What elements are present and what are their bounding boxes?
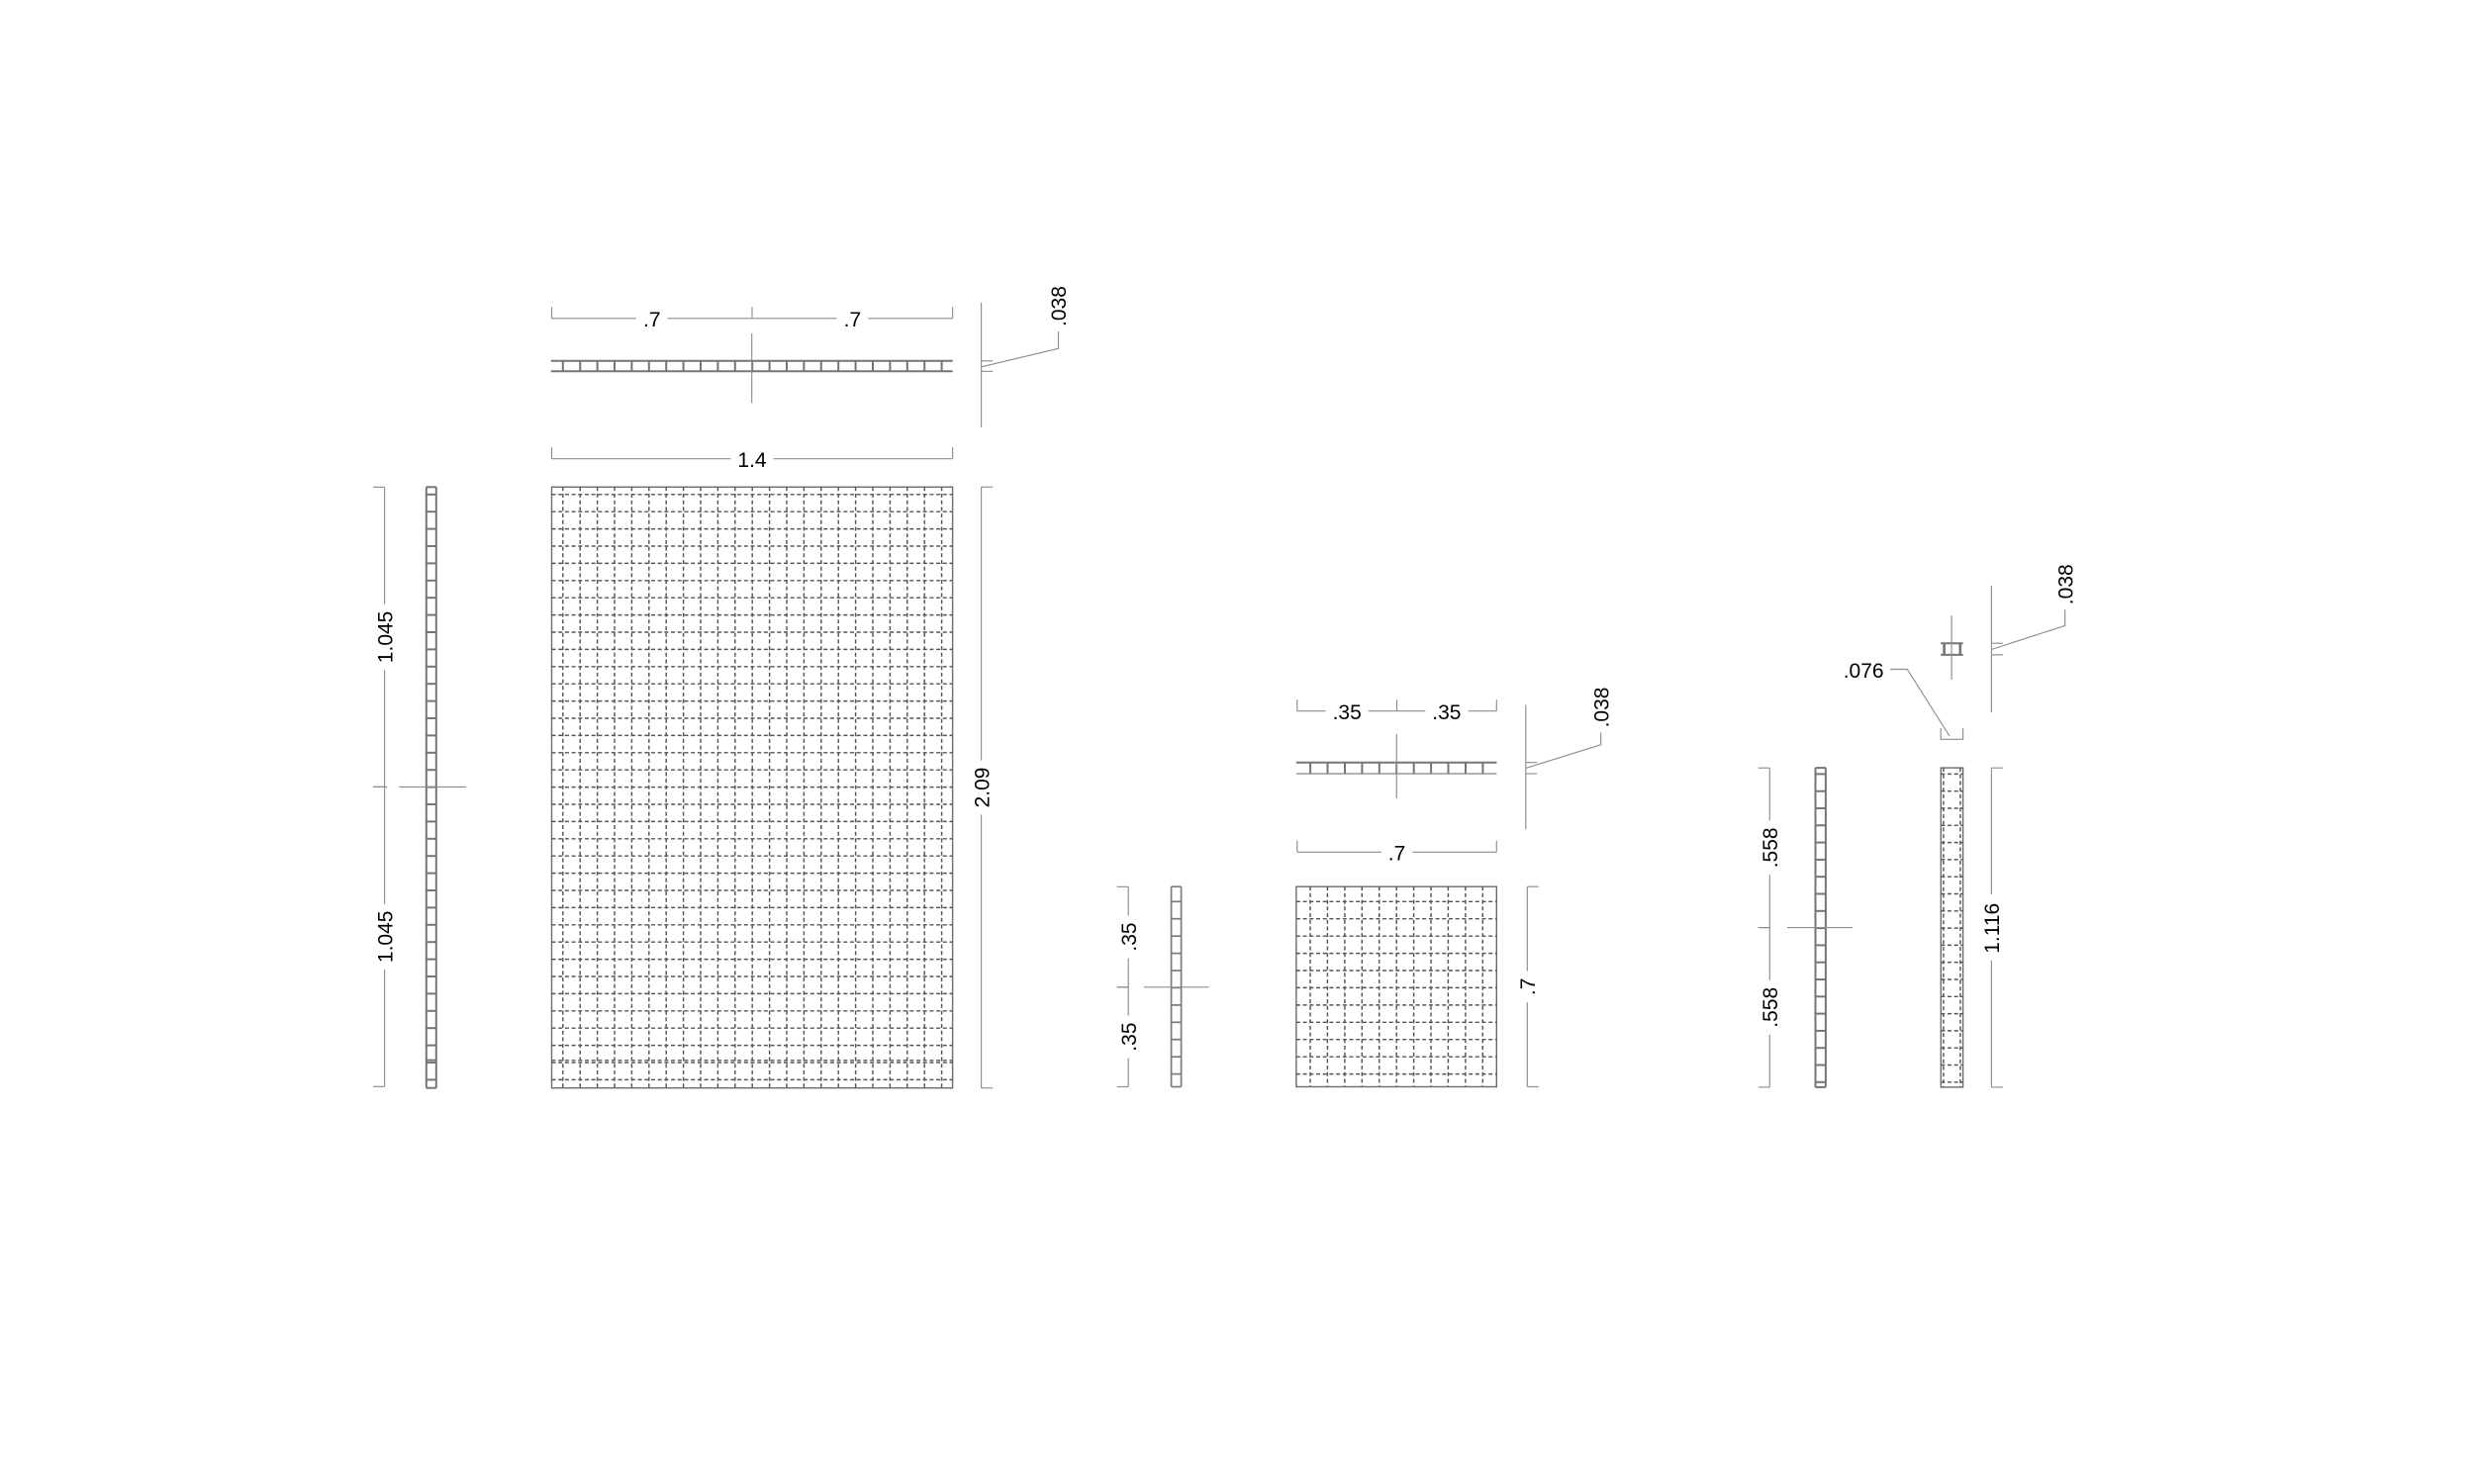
svg-text:.35: .35 xyxy=(1333,701,1362,724)
svg-text:2.09: 2.09 xyxy=(971,768,994,808)
svg-text:.038: .038 xyxy=(1048,286,1071,326)
svg-text:1.116: 1.116 xyxy=(1981,903,2004,954)
svg-text:.7: .7 xyxy=(844,309,862,331)
svg-text:.35: .35 xyxy=(1118,922,1141,951)
svg-text:.038: .038 xyxy=(2054,564,2077,604)
svg-text:1.045: 1.045 xyxy=(374,611,397,664)
svg-text:.7: .7 xyxy=(643,309,661,331)
svg-text:.7: .7 xyxy=(1517,978,1540,996)
svg-text:.558: .558 xyxy=(1760,827,1782,868)
svg-text:.558: .558 xyxy=(1760,987,1782,1028)
svg-text:1.045: 1.045 xyxy=(374,911,397,964)
svg-text:.35: .35 xyxy=(1118,1022,1141,1051)
svg-text:.038: .038 xyxy=(1590,688,1613,728)
svg-text:.076: .076 xyxy=(1844,660,1884,683)
svg-text:.7: .7 xyxy=(1388,843,1406,866)
svg-text:.35: .35 xyxy=(1432,701,1461,724)
svg-text:1.4: 1.4 xyxy=(737,449,767,472)
